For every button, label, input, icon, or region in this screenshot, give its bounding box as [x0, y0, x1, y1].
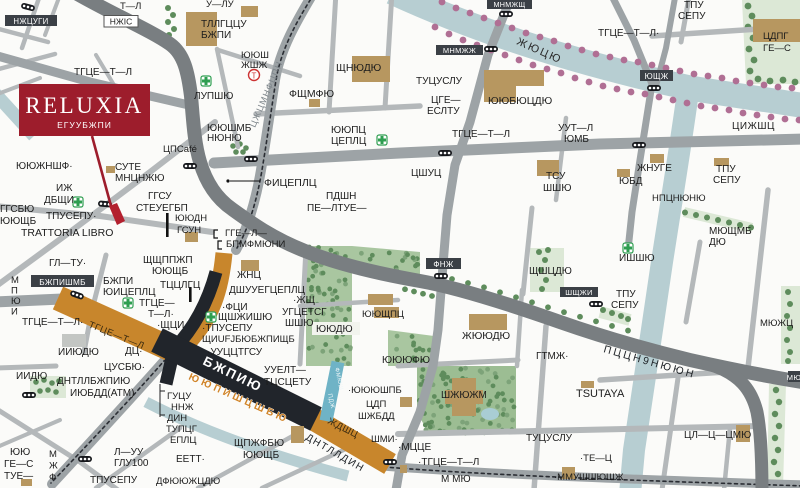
svg-text:ТПУСЕПУ·: ТПУСЕПУ·: [46, 211, 96, 222]
svg-text:ДФЮЮЖЦДЮ: ДФЮЮЖЦДЮ: [156, 476, 221, 487]
svg-text:БЖПИШМБ: БЖПИШМБ: [39, 278, 86, 287]
svg-text:М МЮ: М МЮ: [441, 474, 471, 485]
svg-text:МНЦНЖЮ: МНЦНЖЮ: [115, 173, 165, 184]
svg-text:·ЮЮЮШПБ: ·ЮЮЮШПБ: [348, 385, 402, 396]
svg-text:ТУЦУСЛУ: ТУЦУСЛУ: [416, 76, 463, 87]
svg-text:СЕПУ: СЕПУ: [713, 175, 741, 186]
svg-text:ЮИЦЕПЛЦ: ЮИЦЕПЛЦ: [103, 287, 156, 298]
svg-text:ШШЮ: ШШЮ: [543, 183, 571, 194]
svg-text:ТЛЛГЦЦУ: ТЛЛГЦЦУ: [201, 19, 247, 30]
svg-text:ТГЦЕ—: ТГЦЕ—: [139, 298, 175, 309]
svg-text:ЕСЛТУ: ЕСЛТУ: [427, 106, 460, 117]
svg-text:УУТ—Л: УУТ—Л: [558, 123, 593, 134]
svg-text:ТПУ: ТПУ: [716, 164, 736, 175]
svg-text:ШЖБДД: ШЖБДД: [358, 411, 395, 422]
svg-text:ЖНУГЕ: ЖНУГЕ: [637, 163, 672, 174]
svg-text:ТУЦУСЛУ: ТУЦУСЛУ: [526, 433, 573, 444]
svg-text:ДИН: ДИН: [167, 413, 187, 424]
svg-text:ИЖ: ИЖ: [56, 183, 73, 194]
svg-text:НЮНЮ: НЮНЮ: [207, 133, 242, 144]
svg-text:БПМФМЮНИ: БПМФМЮНИ: [226, 239, 285, 250]
svg-text:ФИЦЕПЛЦ: ФИЦЕПЛЦ: [264, 177, 317, 189]
svg-text:ДБЩИ: ДБЩИ: [44, 195, 74, 206]
svg-text:ЦДП: ЦДП: [366, 399, 386, 410]
svg-text:·ММУШШЮШЖ: ·ММУШШЮШЖ: [554, 472, 624, 483]
svg-text:ЩИUFJБЮБЖПИЩБ: ЩИUFJБЮБЖПИЩБ: [202, 334, 295, 345]
svg-text:Ю: Ю: [11, 296, 21, 307]
svg-text:ЦУСБЮ·: ЦУСБЮ·: [104, 362, 145, 373]
svg-text:ИЮБДД(ATM): ИЮБДД(ATM): [70, 388, 134, 399]
svg-text:ЩНЮДЮ: ЩНЮДЮ: [336, 62, 382, 74]
svg-text:ПДШН: ПДШН: [326, 191, 356, 202]
svg-text:·УУЦЦТГСУ: ·УУЦЦТГСУ: [207, 347, 263, 358]
svg-text:МЮ: МЮ: [787, 373, 800, 382]
svg-text:ДЦ·: ДЦ·: [125, 346, 143, 357]
svg-text:ТГЦЕ—Т—Л: ТГЦЕ—Т—Л: [74, 67, 132, 78]
svg-text:ЖНЦ: ЖНЦ: [237, 270, 261, 281]
svg-text:ТГЦЕ—Т—Л: ТГЦЕ—Т—Л: [452, 129, 510, 140]
svg-text:ФЩМФЮ: ФЩМФЮ: [289, 88, 334, 100]
svg-text:БЖПИ: БЖПИ: [201, 30, 231, 41]
svg-text:ГЕ—С: ГЕ—С: [4, 459, 33, 470]
svg-text:ЩЩППЖП: ЩЩППЖП: [143, 255, 193, 266]
svg-text:ЩШЦДЮ: ЩШЦДЮ: [529, 266, 572, 277]
svg-text:МЮЩМБ: МЮЩМБ: [709, 226, 752, 237]
svg-text:ЮЮЩБ: ЮЮЩБ: [243, 450, 280, 461]
svg-text:Ф: Ф: [49, 472, 56, 483]
svg-text:ЮЮЩБ: ЮЮЩБ: [0, 216, 37, 227]
svg-text:·ЖЩ: ·ЖЩ: [293, 295, 315, 306]
svg-text:НЖIC: НЖIC: [110, 17, 133, 27]
svg-text:ПЕ—ЛТУЕ—: ПЕ—ЛТУЕ—: [307, 203, 367, 214]
svg-text:ЦДПГ: ЦДПГ: [763, 31, 788, 42]
svg-text:ДНТЛЛБЖПИЮ: ДНТЛЛБЖПИЮ: [57, 376, 130, 387]
svg-text:НЖЦУГИ: НЖЦУГИ: [13, 17, 48, 26]
svg-text:МНМЖЖ: МНМЖЖ: [443, 46, 476, 55]
svg-text:ЮЮДН: ЮЮДН: [175, 213, 207, 224]
svg-text:ГЛУ100: ГЛУ100: [114, 458, 149, 469]
svg-text:ЦЛ—Ц—ЦМЮ: ЦЛ—Ц—ЦМЮ: [684, 430, 751, 441]
svg-text:ТУПЦГ: ТУПЦГ: [166, 424, 197, 435]
svg-text:·ТЕ—Ц: ·ТЕ—Ц: [580, 453, 612, 464]
svg-text:ЮЮПЦ: ЮЮПЦ: [331, 125, 366, 136]
svg-text:ГГСУ: ГГСУ: [148, 191, 172, 202]
svg-text:ДЮ: ДЮ: [709, 237, 726, 248]
svg-text:ЦИЖШЦ: ЦИЖШЦ: [732, 121, 775, 132]
svg-text:ТПУ: ТПУ: [616, 289, 636, 300]
svg-text:ЖЮЮДЮ: ЖЮЮДЮ: [462, 330, 511, 342]
svg-text:ТГЦЕ—Т—Л·: ТГЦЕ—Т—Л·: [598, 28, 659, 39]
svg-text:ТСУ: ТСУ: [546, 171, 566, 182]
svg-text:ЕЕТТ·: ЕЕТТ·: [176, 454, 205, 465]
svg-text:П: П: [11, 286, 18, 297]
svg-text:ФНЖ: ФНЖ: [433, 260, 453, 269]
svg-text:ГЕ—С: ГЕ—С: [763, 43, 791, 54]
svg-text:НПЦНЮНЮ: НПЦНЮНЮ: [652, 193, 706, 204]
svg-text:М: М: [11, 275, 19, 286]
svg-text:RELUXIA: RELUXIA: [25, 93, 143, 118]
svg-text:ТУЕ—: ТУЕ—: [4, 471, 33, 482]
svg-text:СЕПУ: СЕПУ: [678, 11, 706, 22]
svg-text:ИШШЮ: ИШШЮ: [619, 253, 655, 264]
svg-text:ЮЮЩПЦ: ЮЮЩПЦ: [362, 309, 404, 320]
svg-text:ЦЕПЛЦ: ЦЕПЛЦ: [331, 136, 367, 147]
svg-text:ШМИ·: ШМИ·: [371, 434, 398, 445]
svg-text:ИИЮДЮ: ИИЮДЮ: [58, 347, 99, 358]
svg-text:·ЩЦИ: ·ЩЦИ: [157, 320, 184, 331]
svg-text:М: М: [49, 449, 57, 460]
svg-text:ШЖЮЖМ: ШЖЮЖМ: [441, 390, 487, 401]
svg-text:ГУЦУ: ГУЦУ: [167, 391, 192, 402]
svg-text:ГЛ—ТУ·: ГЛ—ТУ·: [49, 258, 86, 269]
svg-text:TRATTORIA LIBRO: TRATTORIA LIBRO: [21, 227, 113, 239]
svg-text:ГГЕ—Л—: ГГЕ—Л—: [225, 228, 267, 239]
svg-text:T: T: [252, 72, 257, 81]
svg-text:ЕПЛЦ: ЕПЛЦ: [170, 435, 196, 446]
svg-text:·ТПУСЕПУ: ·ТПУСЕПУ: [202, 323, 253, 334]
svg-text:ННЖ: ННЖ: [171, 402, 194, 413]
svg-text:И: И: [11, 307, 18, 318]
svg-text:ЛУПШЮ: ЛУПШЮ: [194, 91, 233, 102]
svg-text:ШЩЖИ: ШЩЖИ: [565, 288, 592, 297]
svg-text:ЮЮ: ЮЮ: [10, 447, 30, 458]
svg-text:МНМЖЩ: МНМЖЩ: [493, 0, 525, 9]
svg-text:ЦПCafé: ЦПCafé: [163, 144, 197, 155]
svg-text:ТГЦЕ—Т—Л·: ТГЦЕ—Т—Л·: [22, 317, 83, 328]
svg-text:ГТМЖ·: ГТМЖ·: [536, 351, 568, 362]
svg-text:ЦШУЦ: ЦШУЦ: [411, 168, 442, 179]
svg-text:УГЦЕТСГ: УГЦЕТСГ: [282, 307, 327, 318]
svg-text:МЮЖЦ: МЮЖЦ: [760, 318, 793, 329]
svg-text:ТПУСЕПУ: ТПУСЕПУ: [90, 475, 138, 486]
svg-text:ЩШЖИШЮ: ЩШЖИШЮ: [218, 312, 272, 323]
svg-text:ШШЮ: ШШЮ: [285, 318, 313, 329]
svg-text:ЮБД: ЮБД: [619, 176, 643, 187]
svg-text:·ТГЦЕ—Т—Л: ·ТГЦЕ—Т—Л: [418, 457, 479, 468]
svg-text:ЮЮЩБ: ЮЮЩБ: [152, 266, 189, 277]
svg-text:ИИДЮ: ИИДЮ: [16, 371, 47, 382]
svg-text:ЩПЖФБЮ: ЩПЖФБЮ: [234, 438, 284, 449]
svg-text:TSUTAYA: TSUTAYA: [576, 388, 625, 400]
svg-text:ТПУ: ТПУ: [684, 0, 704, 11]
svg-text:Л—УУ: Л—УУ: [114, 447, 144, 458]
svg-text:ЮЮЮФЮ: ЮЮЮФЮ: [382, 355, 430, 366]
svg-text:ГГСБЮ: ГГСБЮ: [0, 204, 34, 215]
svg-text:СУТЕ: СУТЕ: [115, 162, 141, 173]
svg-text:ЮМБ: ЮМБ: [564, 134, 589, 145]
svg-text:ГСУН: ГСУН: [177, 225, 201, 236]
svg-text:ЮЮЖНШФ·: ЮЮЖНШФ·: [16, 161, 73, 172]
svg-text:У—ЛУ: У—ЛУ: [206, 0, 235, 10]
svg-text:Т—Л: Т—Л: [120, 1, 141, 12]
svg-text:ЮЮБЮЦДЮ: ЮЮБЮЦДЮ: [488, 95, 553, 107]
svg-text:Т—Л·: Т—Л·: [148, 309, 174, 320]
svg-text:ЖШЖ: ЖШЖ: [241, 60, 267, 71]
svg-text:ТЦСЦЕТУ: ТЦСЦЕТУ: [264, 377, 312, 388]
svg-text:СЕПУ: СЕПУ: [611, 300, 639, 311]
svg-text:ЕГУУБЖПИ: ЕГУУБЖПИ: [57, 120, 112, 130]
svg-text:ТЦЦЛГЦ: ТЦЦЛГЦ: [160, 280, 201, 291]
svg-text:Ж: Ж: [49, 461, 58, 472]
svg-text:ЮЩЖ: ЮЩЖ: [645, 72, 669, 81]
svg-text:ЮЮДЮ: ЮЮДЮ: [316, 324, 353, 335]
svg-text:ЦГЕ—: ЦГЕ—: [431, 95, 460, 106]
svg-text:УУЕЛТ—: УУЕЛТ—: [264, 365, 306, 376]
svg-text:·МЦЦЕ: ·МЦЦЕ: [398, 442, 431, 453]
svg-text:БЖПИ: БЖПИ: [103, 276, 133, 287]
